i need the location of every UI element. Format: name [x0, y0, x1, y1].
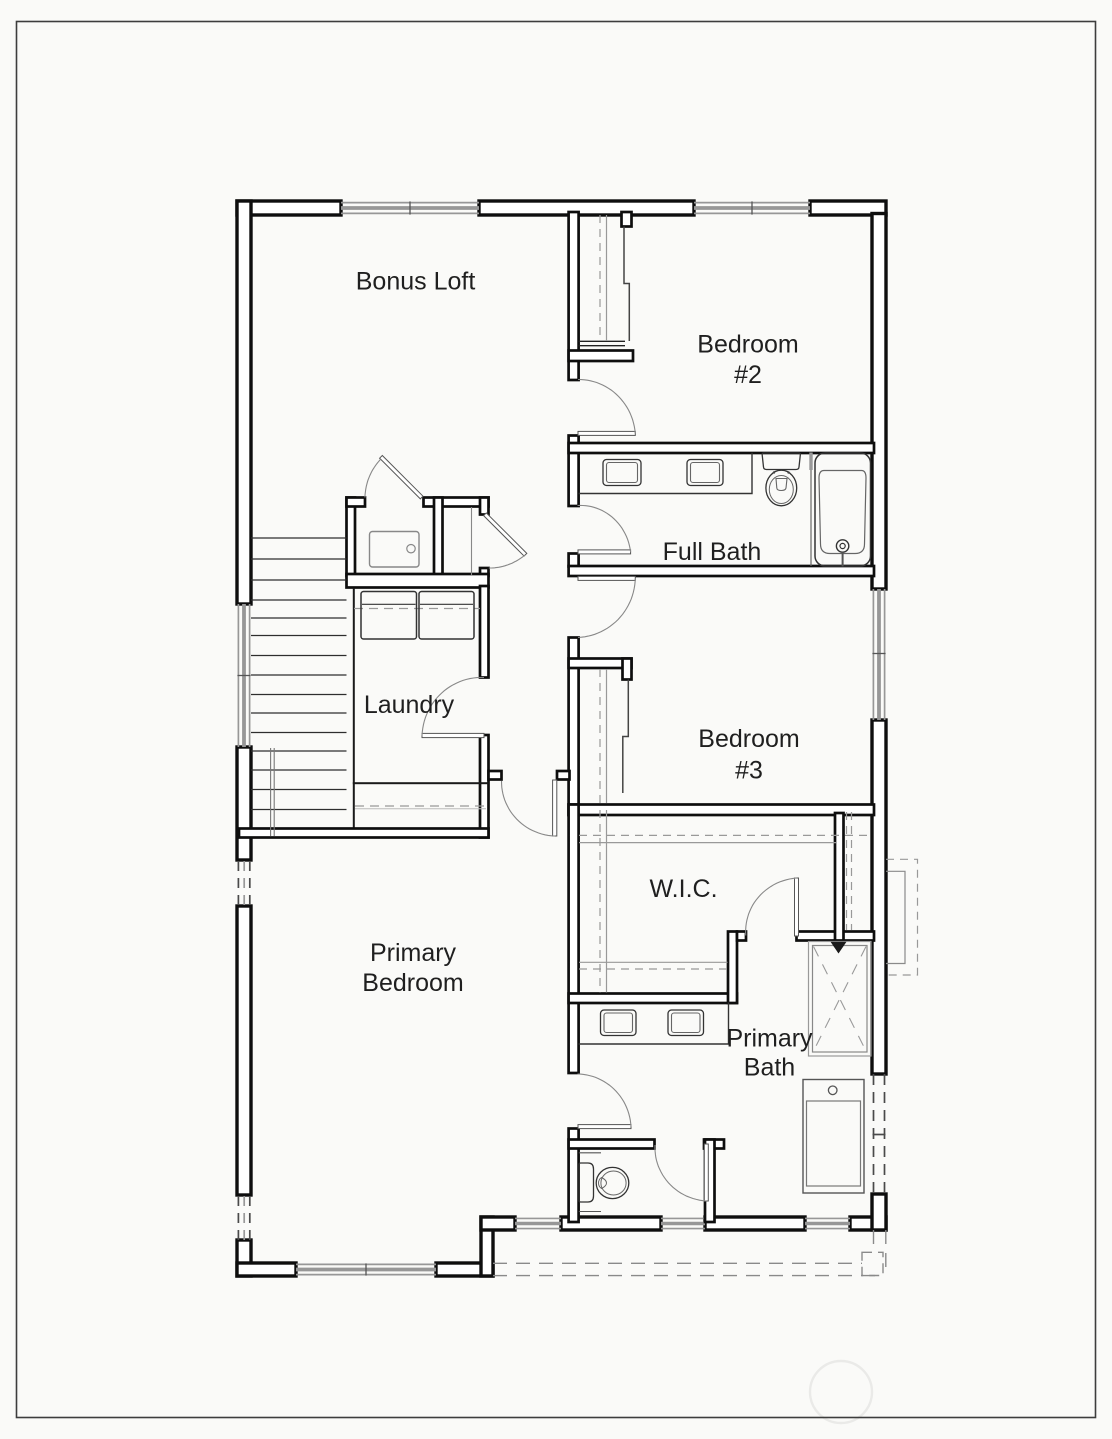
svg-text:Laundry: Laundry — [364, 691, 455, 719]
svg-text:#2: #2 — [734, 361, 762, 389]
svg-text:Full Bath: Full Bath — [663, 538, 762, 566]
svg-text:Primary: Primary — [726, 1025, 813, 1053]
svg-text:Bonus Loft: Bonus Loft — [356, 268, 476, 296]
svg-text:Primary: Primary — [370, 939, 457, 967]
svg-text:W.I.C.: W.I.C. — [649, 875, 717, 903]
svg-text:Bedroom: Bedroom — [698, 725, 799, 753]
svg-text:#3: #3 — [735, 757, 763, 785]
svg-text:Bedroom: Bedroom — [362, 969, 463, 997]
svg-text:Bedroom: Bedroom — [697, 331, 798, 359]
svg-text:Bath: Bath — [744, 1054, 795, 1082]
